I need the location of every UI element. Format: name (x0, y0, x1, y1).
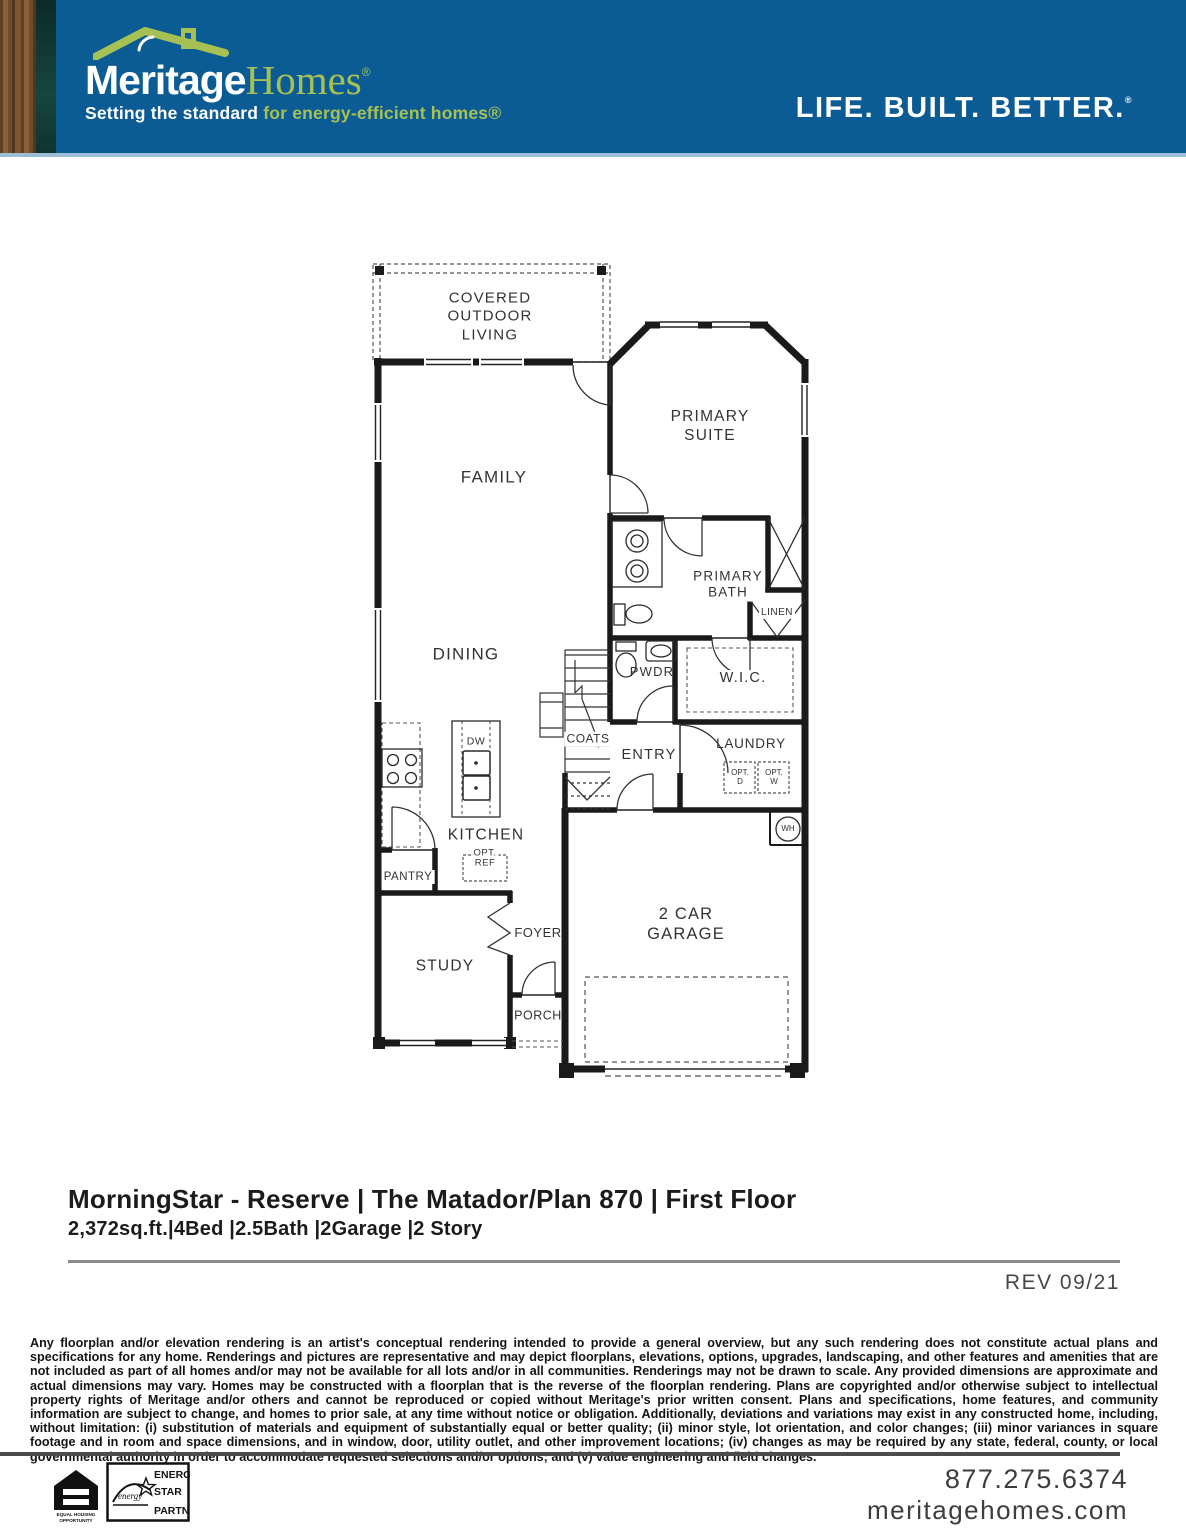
room-label-linen: LINEN (759, 607, 795, 619)
footer-contact: 877.275.6374 meritagehomes.com (867, 1464, 1128, 1526)
room-label-dining: DINING (433, 645, 500, 666)
wood-texture-strip (0, 0, 36, 157)
floorplan-canvas: COVERED OUTDOOR LIVING FAMILY PRIMARY SU… (360, 255, 820, 1085)
fixture-label-opt-refrigerator: OPT. REF (471, 849, 498, 870)
logo-homes-text: Homes (246, 57, 362, 103)
energy-star-line-1: ENERGY (154, 1469, 190, 1481)
title-divider (68, 1260, 1120, 1263)
logo-meritage-text: Meritage (85, 57, 246, 103)
room-label-pwdr: PWDR (630, 664, 675, 680)
slogan-text: LIFE. BUILT. BETTER. (796, 92, 1125, 124)
meritage-homes-logo: MeritageHomes® (85, 26, 505, 101)
plan-specs: 2,372sq.ft.|4Bed |2.5Bath |2Garage |2 St… (68, 1218, 482, 1241)
phone-link[interactable]: 877.275.6374 (867, 1464, 1128, 1495)
room-label-wic: W.I.C. (718, 670, 769, 688)
website-link[interactable]: meritagehomes.com (867, 1495, 1128, 1526)
fixture-label-opt-washer: OPT. W (765, 768, 783, 786)
room-label-garage: 2 CAR GARAGE (619, 904, 753, 944)
header-banner: MeritageHomes® Setting the standard for … (0, 0, 1186, 153)
room-label-coats: COATS (565, 732, 612, 747)
fixture-label-water-heater: WH (781, 824, 794, 834)
room-label-pantry: PANTRY (382, 870, 435, 884)
room-label-laundry: LAUNDRY (716, 736, 786, 752)
revision-label: REV 09/21 (1005, 1271, 1120, 1295)
slogan-mark: ® (1125, 95, 1133, 105)
brand-slogan: LIFE. BUILT. BETTER.® (796, 92, 1133, 125)
logo-wordmark: MeritageHomes® (85, 56, 371, 104)
footer-divider (0, 1452, 1120, 1456)
room-label-study: STUDY (416, 958, 475, 977)
legal-disclaimer: Any floorplan and/or elevation rendering… (30, 1336, 1158, 1464)
fixture-label-dishwasher: DW (465, 736, 488, 749)
brand-tagline: Setting the standard for energy-efficien… (85, 103, 501, 124)
energy-star-script: energy (118, 1491, 142, 1501)
logo-roof-icon (93, 26, 243, 60)
tagline-lead: Setting the standard (85, 103, 263, 123)
logo-registered-mark: ® (362, 65, 371, 79)
equal-housing-text-1: EQUAL HOUSING (57, 1512, 96, 1517)
energy-star-line-3: PARTNER (154, 1505, 190, 1517)
room-label-kitchen: KITCHEN (448, 827, 524, 846)
header-accent-line (0, 153, 1186, 157)
plan-title: MorningStar - Reserve | The Matador/Plan… (68, 1184, 796, 1215)
page: MeritageHomes® Setting the standard for … (0, 0, 1186, 1536)
teal-accent-strip (36, 0, 56, 157)
room-label-primary-bath: PRIMARY BATH (691, 569, 765, 602)
tagline-accent: for energy-efficient homes® (263, 103, 501, 123)
equal-housing-icon: EQUAL HOUSING OPPORTUNITY (52, 1468, 100, 1524)
energy-star-icon: energy ENERGY STAR PARTNER (106, 1462, 190, 1522)
energy-star-line-2: STAR (154, 1486, 182, 1498)
room-label-family: FAMILY (461, 468, 527, 489)
room-label-porch: PORCH (514, 1008, 562, 1023)
fixture-label-opt-dryer: OPT. D (731, 768, 749, 786)
room-label-covered-outdoor-living: COVERED OUTDOOR LIVING (447, 290, 532, 345)
room-label-foyer: FOYER (514, 925, 561, 941)
room-label-primary-suite: PRIMARY SUITE (671, 408, 750, 446)
equal-housing-text-2: OPPORTUNITY (59, 1518, 92, 1523)
room-label-entry: ENTRY (622, 747, 677, 765)
